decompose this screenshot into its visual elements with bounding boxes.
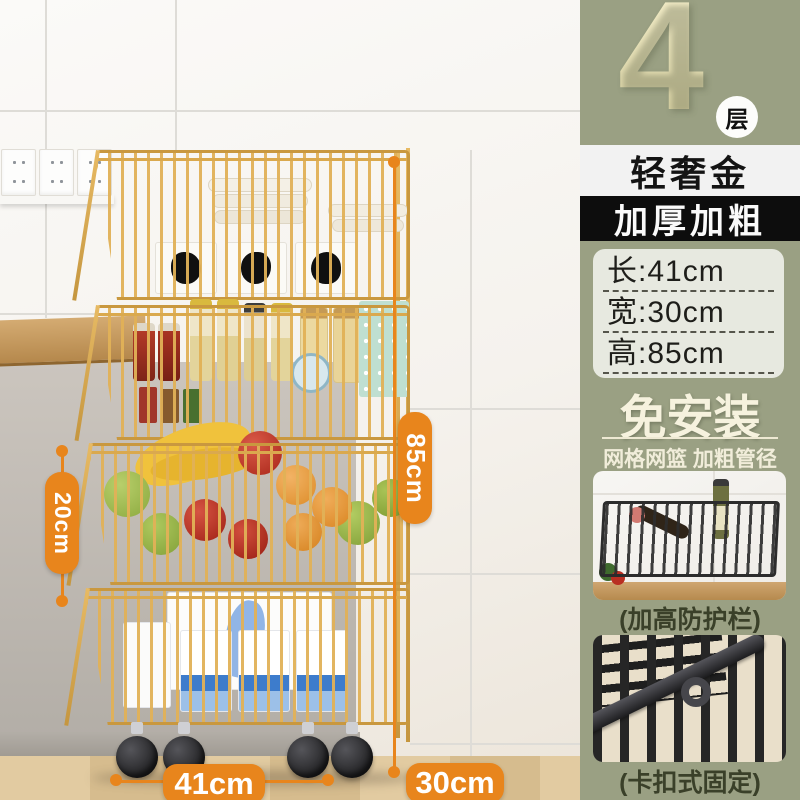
spec-height: 高:85cm	[603, 333, 774, 374]
gap-measure-label: 20cm	[49, 492, 76, 555]
basket-tier-4-cartons	[85, 588, 410, 725]
product-listing-image: 85cm 20cm 41cm 30cm 4 层 轻奢金 加厚加粗 长:41cm …	[0, 0, 800, 800]
basket-tier-2-condiments	[95, 305, 410, 440]
variant-name-banner: 轻奢金	[580, 145, 800, 196]
detail-photo-guardrail	[593, 471, 786, 600]
wire-basket	[88, 443, 410, 585]
caster-wheel	[115, 722, 159, 780]
tile-grout-line	[410, 743, 580, 745]
height-measure-label: 85cm	[400, 433, 431, 504]
depth-measure-badge: 30cm	[406, 763, 504, 800]
tile-grout-line	[175, 0, 177, 150]
measure-dot	[56, 595, 68, 607]
caster-wheel	[286, 722, 330, 780]
caster-wheel	[330, 722, 374, 780]
tier-count: 4	[588, 0, 734, 133]
info-panel: 4 层 轻奢金 加厚加粗 长:41cm 宽:30cm 高:85cm 免安装 网格…	[580, 0, 800, 800]
spec-width: 宽:30cm	[603, 292, 774, 333]
tile-grout-line	[0, 110, 580, 112]
measure-dot	[110, 774, 122, 786]
kitchen-scene: 85cm 20cm 41cm 30cm	[0, 0, 580, 800]
tile-grout-line	[410, 408, 580, 410]
measure-dot	[388, 766, 400, 778]
depth-measure-label: 30cm	[415, 765, 494, 800]
divider-line	[602, 437, 778, 439]
snap-clamp	[681, 677, 711, 707]
tier-unit-badge: 层	[716, 96, 758, 138]
width-measure-label: 41cm	[174, 766, 253, 800]
wood-surface	[593, 582, 786, 600]
basket-tier-1-dishes	[95, 150, 410, 300]
black-wire-basket	[599, 501, 780, 577]
measure-dot	[322, 774, 334, 786]
width-measure-badge: 41cm	[163, 764, 265, 800]
tile-grout-line	[593, 493, 786, 495]
detail-caption-clip: (卡扣式固定)	[580, 763, 800, 799]
height-measure-badge: 85cm	[398, 412, 432, 524]
wire-basket	[95, 150, 410, 300]
basket-tier-3-fruit	[88, 443, 410, 585]
measure-dot	[388, 156, 400, 168]
spec-box: 长:41cm 宽:30cm 高:85cm	[593, 249, 784, 378]
measure-dot	[56, 445, 68, 457]
tile-grout-line	[410, 573, 580, 575]
detail-photo-clip	[593, 635, 786, 762]
detail-caption-guardrail: (加高防护栏)	[580, 600, 800, 636]
mesh-subheadline: 网格网篮 加粗管径	[580, 443, 800, 473]
feature-banner: 加厚加粗	[580, 196, 800, 241]
tile-grout-line	[470, 150, 472, 756]
wire-basket	[85, 588, 410, 725]
gap-measure-badge: 20cm	[45, 472, 79, 574]
height-measure-line	[393, 162, 396, 772]
spec-length: 长:41cm	[603, 251, 774, 292]
power-outlet	[1, 149, 36, 196]
power-outlet	[39, 149, 74, 196]
wire-basket	[95, 305, 410, 440]
